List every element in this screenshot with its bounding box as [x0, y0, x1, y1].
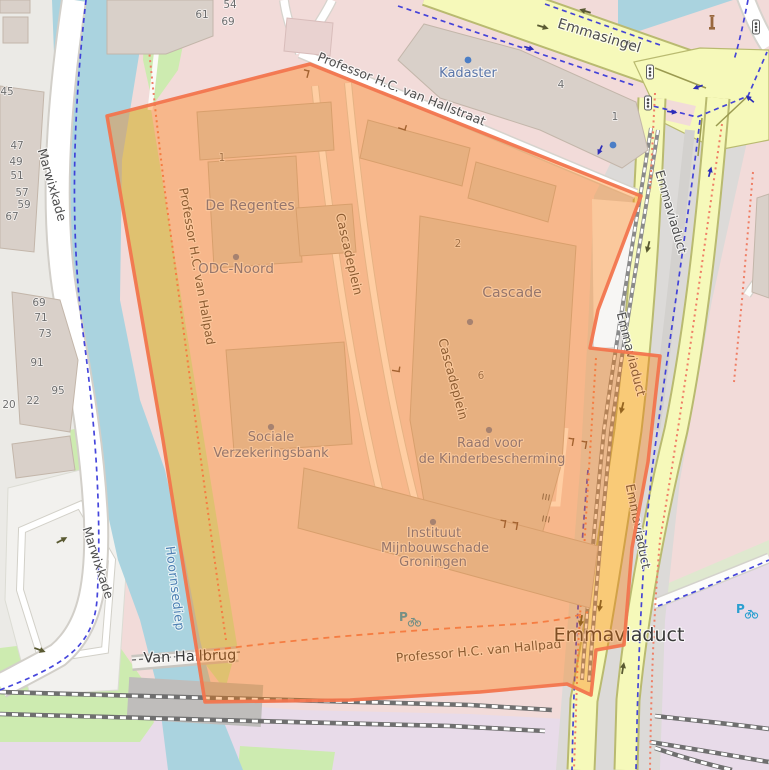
house-number: 95 — [51, 385, 64, 397]
house-number: 59 — [17, 199, 30, 211]
house-number: 71 — [34, 312, 47, 324]
house-number: 1 — [612, 111, 619, 123]
poi-dot-blue — [610, 142, 617, 149]
traffic-light-icon — [647, 65, 654, 79]
house-number: 91 — [30, 357, 43, 369]
poi-label-kadaster: Kadaster — [439, 66, 497, 81]
house-number: 49 — [9, 156, 22, 168]
house-number: 47 — [10, 140, 23, 152]
building-left-row — [12, 436, 75, 478]
traffic-light-icon — [645, 96, 652, 110]
building-tl-small2 — [3, 17, 28, 43]
house-number: 57 — [15, 187, 28, 199]
traffic-light-icon — [753, 20, 760, 34]
house-number: 45 — [0, 86, 13, 98]
house-number: 4 — [558, 79, 565, 91]
house-number: 51 — [10, 170, 23, 182]
svg-text:P: P — [736, 602, 745, 616]
house-number: 73 — [38, 328, 51, 340]
house-number: 69 — [32, 297, 45, 309]
poi-dot-blue — [465, 57, 472, 64]
house-number: 61 — [195, 9, 208, 21]
house-number: 20 — [2, 399, 15, 411]
house-number: 69 — [221, 16, 234, 28]
map-canvas[interactable]: PP MarwixkadeMarwixkadeEmmasingelProfess… — [0, 0, 769, 770]
building-tl-small1 — [0, 0, 30, 13]
house-number: 54 — [223, 0, 237, 11]
house-number: 22 — [26, 395, 39, 407]
house-number: 67 — [5, 211, 18, 223]
